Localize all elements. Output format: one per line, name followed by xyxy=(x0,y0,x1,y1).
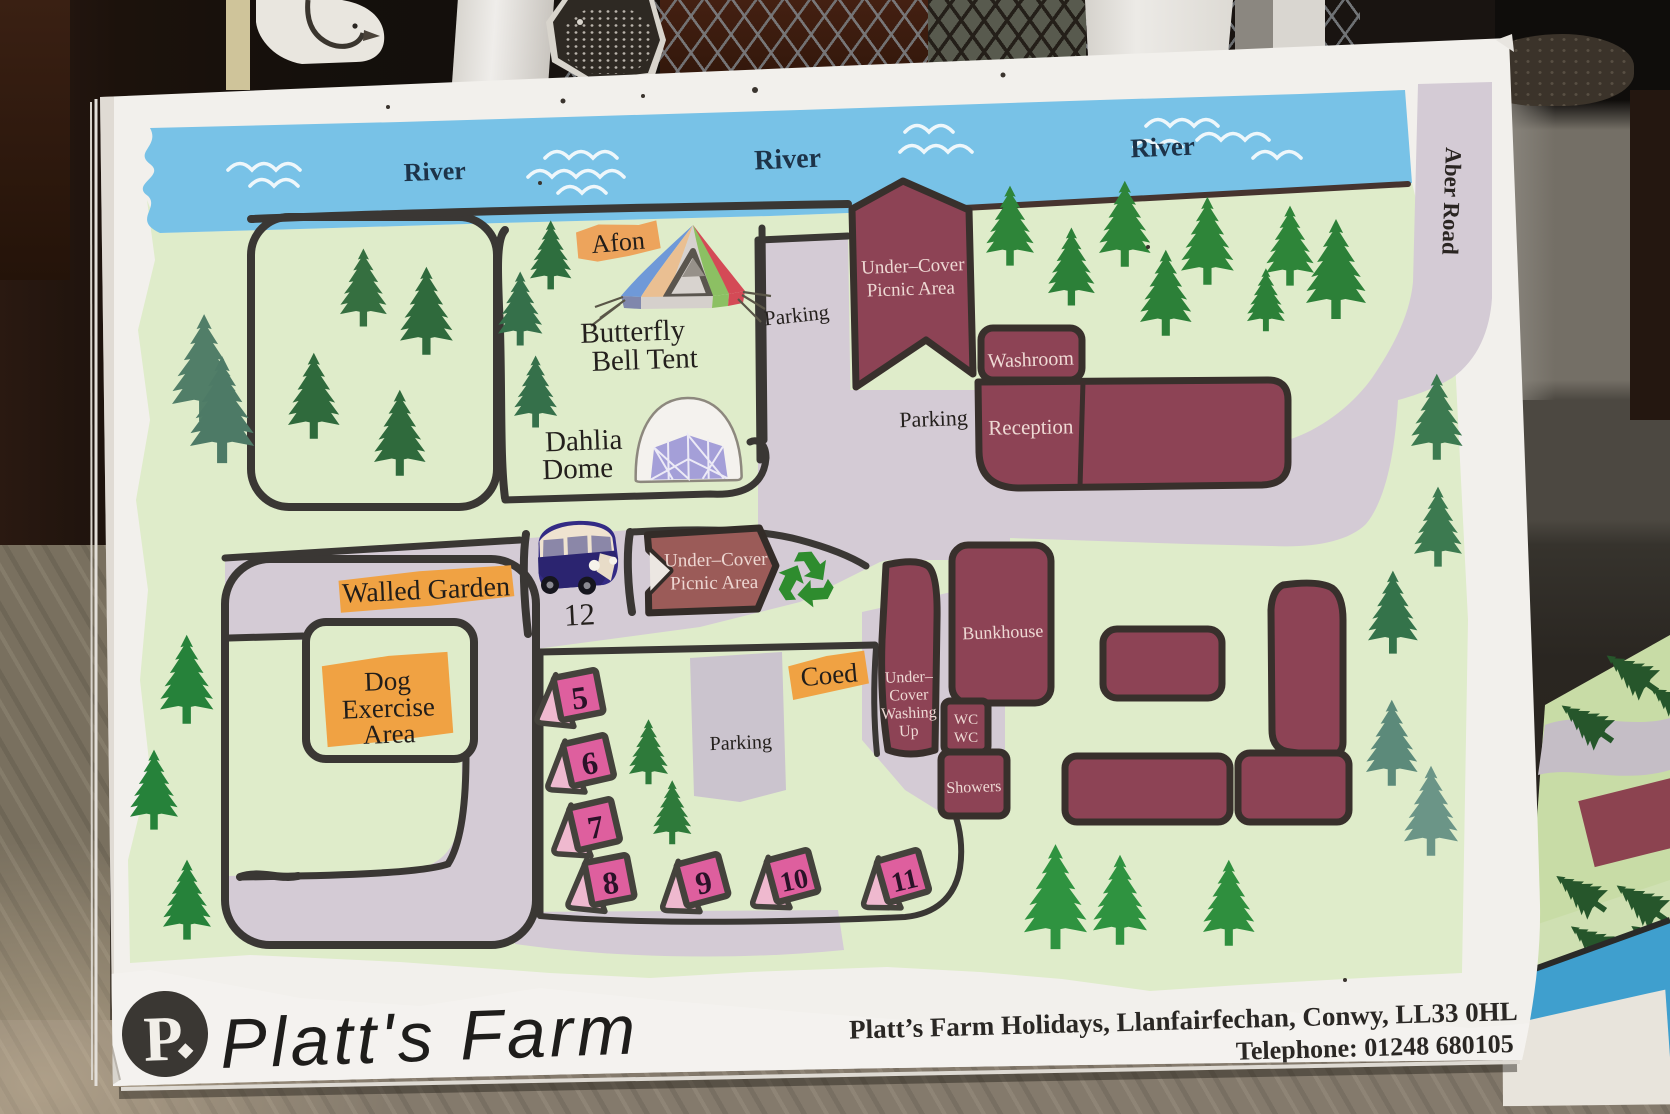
svg-text:12: 12 xyxy=(563,596,596,633)
svg-text:Parking: Parking xyxy=(899,405,968,432)
svg-text:P: P xyxy=(142,1002,184,1074)
svg-text:Picnic Area: Picnic Area xyxy=(670,572,759,595)
svg-text:Showers: Showers xyxy=(946,778,1002,797)
svg-text:Dome: Dome xyxy=(542,452,614,486)
svg-text:Reception: Reception xyxy=(988,414,1074,439)
svg-text:Picnic Area: Picnic Area xyxy=(866,277,955,301)
svg-text:Cover: Cover xyxy=(889,686,929,704)
svg-text:Coed: Coed xyxy=(799,657,859,692)
svg-text:WC: WC xyxy=(954,712,978,728)
svg-text:Under–Cover: Under–Cover xyxy=(861,254,966,279)
svg-text:Aber Road: Aber Road xyxy=(1437,147,1466,256)
svg-text:Under–Cover: Under–Cover xyxy=(664,549,768,572)
svg-text:River: River xyxy=(1130,131,1196,164)
svg-text:Bell Tent: Bell Tent xyxy=(591,342,698,378)
svg-text:Washroom: Washroom xyxy=(987,347,1074,372)
svg-text:Platt's Farm: Platt's Farm xyxy=(219,990,641,1083)
svg-text:Parking: Parking xyxy=(709,731,772,755)
svg-text:Bunkhouse: Bunkhouse xyxy=(962,621,1044,644)
svg-text:River: River xyxy=(754,143,822,177)
svg-text:Up: Up xyxy=(899,723,919,741)
svg-text:WC: WC xyxy=(954,730,978,746)
svg-text:River: River xyxy=(403,156,466,187)
svg-text:Washing: Washing xyxy=(881,704,937,723)
svg-text:Under–: Under– xyxy=(885,668,935,687)
svg-text:Area: Area xyxy=(363,718,416,750)
svg-text:Afon: Afon xyxy=(590,226,646,260)
